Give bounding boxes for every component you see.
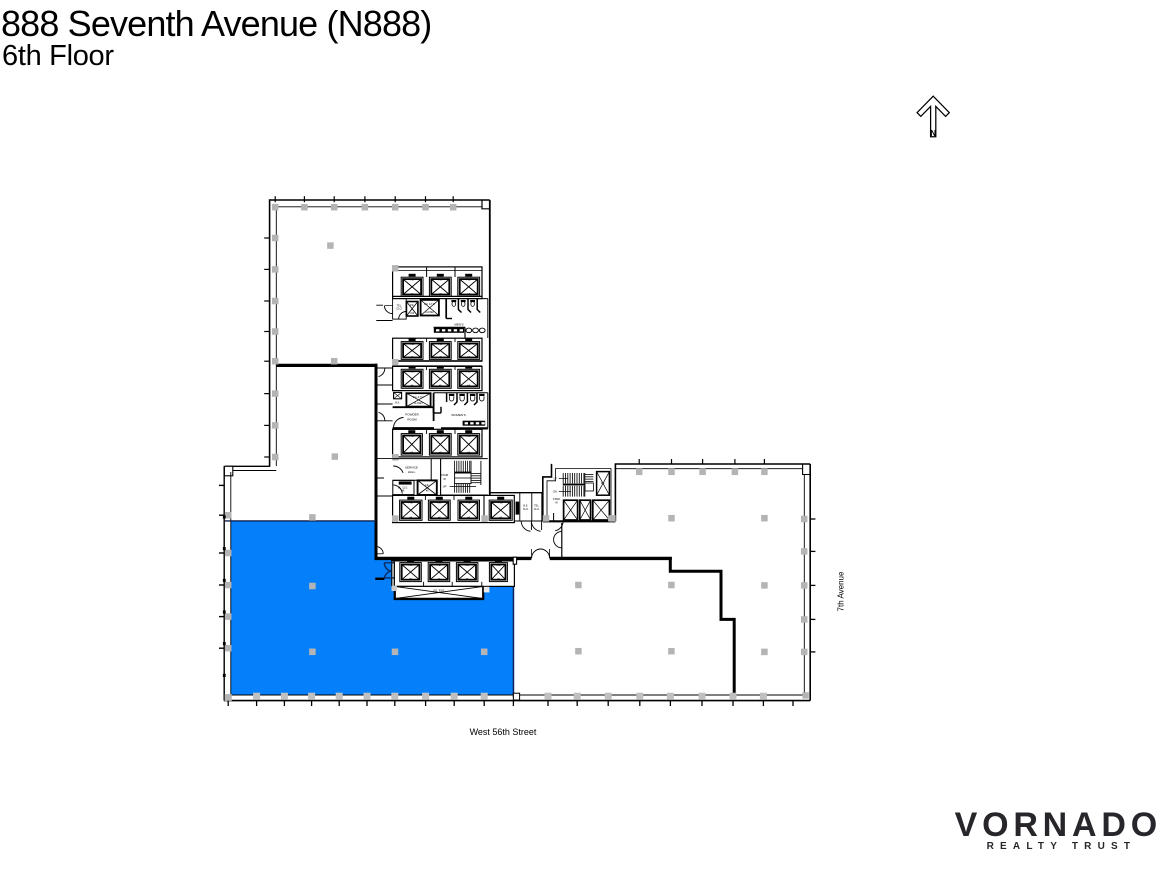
svg-text:F.E.: F.E. [425, 484, 429, 487]
svg-text:CLOSET: CLOSET [425, 312, 435, 314]
svg-text:CLO.: CLO. [523, 508, 529, 511]
svg-text:P.E.: P.E. [465, 563, 470, 567]
svg-text:CLO.: CLO. [396, 308, 402, 311]
svg-text:P.E.: P.E. [437, 501, 442, 505]
svg-text:CLOSET: CLOSET [414, 403, 424, 405]
svg-text:SERVICE: SERVICE [405, 465, 418, 469]
svg-text:POWDER: POWDER [405, 413, 419, 417]
svg-text:D.F. & T.C.: D.F. & T.C. [424, 304, 435, 306]
svg-text:DN: DN [553, 490, 557, 493]
svg-text:P.E.: P.E. [438, 370, 443, 374]
svg-text:P.E.: P.E. [410, 342, 415, 346]
svg-text:P.E.: P.E. [438, 342, 443, 346]
svg-text:P.E.: P.E. [410, 370, 415, 374]
svg-text:P.E.: P.E. [437, 563, 442, 567]
svg-text:W: W [443, 477, 446, 481]
svg-text:UP: UP [553, 477, 557, 480]
svg-text:P.E.: P.E. [409, 501, 414, 505]
svg-text:B.A.: B.A. [395, 401, 400, 404]
svg-text:D.F. & T.C.: D.F. & T.C. [413, 397, 424, 399]
svg-text:P.E.: P.E. [410, 305, 414, 307]
svg-text:P.E.: P.E. [410, 434, 415, 438]
svg-text:P.E.: P.E. [466, 370, 471, 374]
svg-text:CLO.: CLO. [534, 508, 540, 511]
svg-text:#10: #10 [410, 313, 415, 315]
svg-text:P.E.: P.E. [438, 434, 443, 438]
svg-text:W: W [555, 501, 558, 504]
svg-text:F.E. EXIT: F.E. EXIT [434, 588, 445, 592]
svg-text:P.E.: P.E. [466, 342, 471, 346]
svg-text:P.E.: P.E. [466, 501, 471, 505]
svg-text:MEN'S: MEN'S [454, 323, 463, 327]
svg-text:UP: UP [443, 484, 447, 488]
svg-text:P.E.: P.E. [408, 563, 413, 567]
svg-text:P.E.: P.E. [410, 278, 415, 282]
svg-text:WOMEN'S: WOMEN'S [451, 413, 465, 417]
svg-text:West 56th Street: West 56th Street [470, 727, 537, 737]
svg-text:STAIR: STAIR [441, 473, 449, 477]
svg-text:ROOM: ROOM [407, 418, 417, 422]
svg-text:N: N [930, 129, 936, 138]
svg-text:P.E.: P.E. [466, 278, 471, 282]
svg-text:P.E.: P.E. [498, 501, 503, 505]
svg-text:P.E.: P.E. [438, 278, 443, 282]
svg-text:F.E.: F.E. [601, 483, 605, 485]
svg-text:P.E.: P.E. [496, 563, 501, 567]
svg-text:HALL: HALL [408, 470, 416, 474]
svg-text:#5: #5 [426, 490, 429, 493]
svg-text:P.E.: P.E. [466, 434, 471, 438]
svg-text:7th Avenue: 7th Avenue [837, 571, 846, 611]
